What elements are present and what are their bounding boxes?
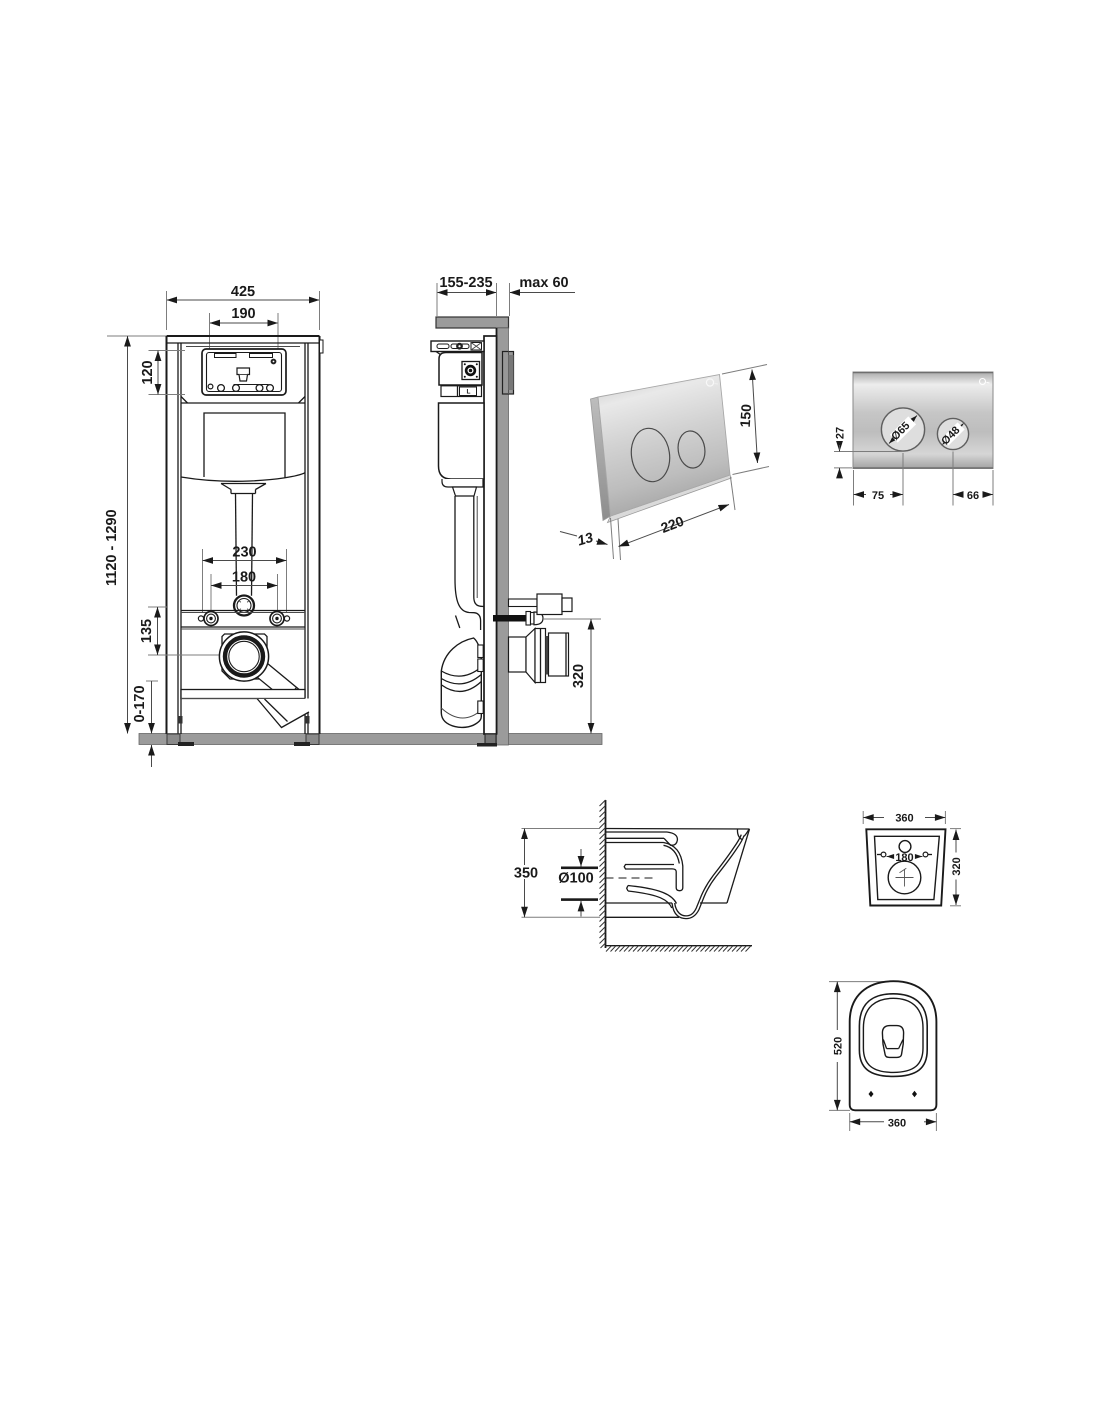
svg-text:135: 135 [139, 619, 155, 643]
svg-text:75: 75 [872, 490, 884, 502]
svg-text:320: 320 [571, 664, 587, 688]
svg-text:230: 230 [232, 545, 256, 561]
svg-text:0-170: 0-170 [132, 685, 148, 722]
svg-text:1120 - 1290: 1120 - 1290 [104, 509, 120, 586]
svg-text:L: L [467, 389, 471, 396]
svg-text:120: 120 [140, 360, 156, 384]
svg-text:360: 360 [888, 1118, 906, 1130]
svg-text:360: 360 [895, 813, 913, 825]
svg-text:155-235: 155-235 [439, 275, 492, 291]
svg-text:190: 190 [231, 306, 255, 322]
svg-text:180: 180 [232, 570, 256, 586]
svg-text:320: 320 [951, 857, 963, 875]
svg-text:150: 150 [737, 403, 754, 427]
svg-text:425: 425 [231, 284, 255, 300]
svg-text:520: 520 [833, 1037, 845, 1055]
svg-text:max 60: max 60 [519, 275, 568, 291]
svg-text:66: 66 [967, 490, 979, 502]
svg-text:Ø100: Ø100 [558, 871, 593, 887]
svg-text:350: 350 [514, 866, 538, 882]
svg-text:27: 27 [835, 427, 847, 439]
